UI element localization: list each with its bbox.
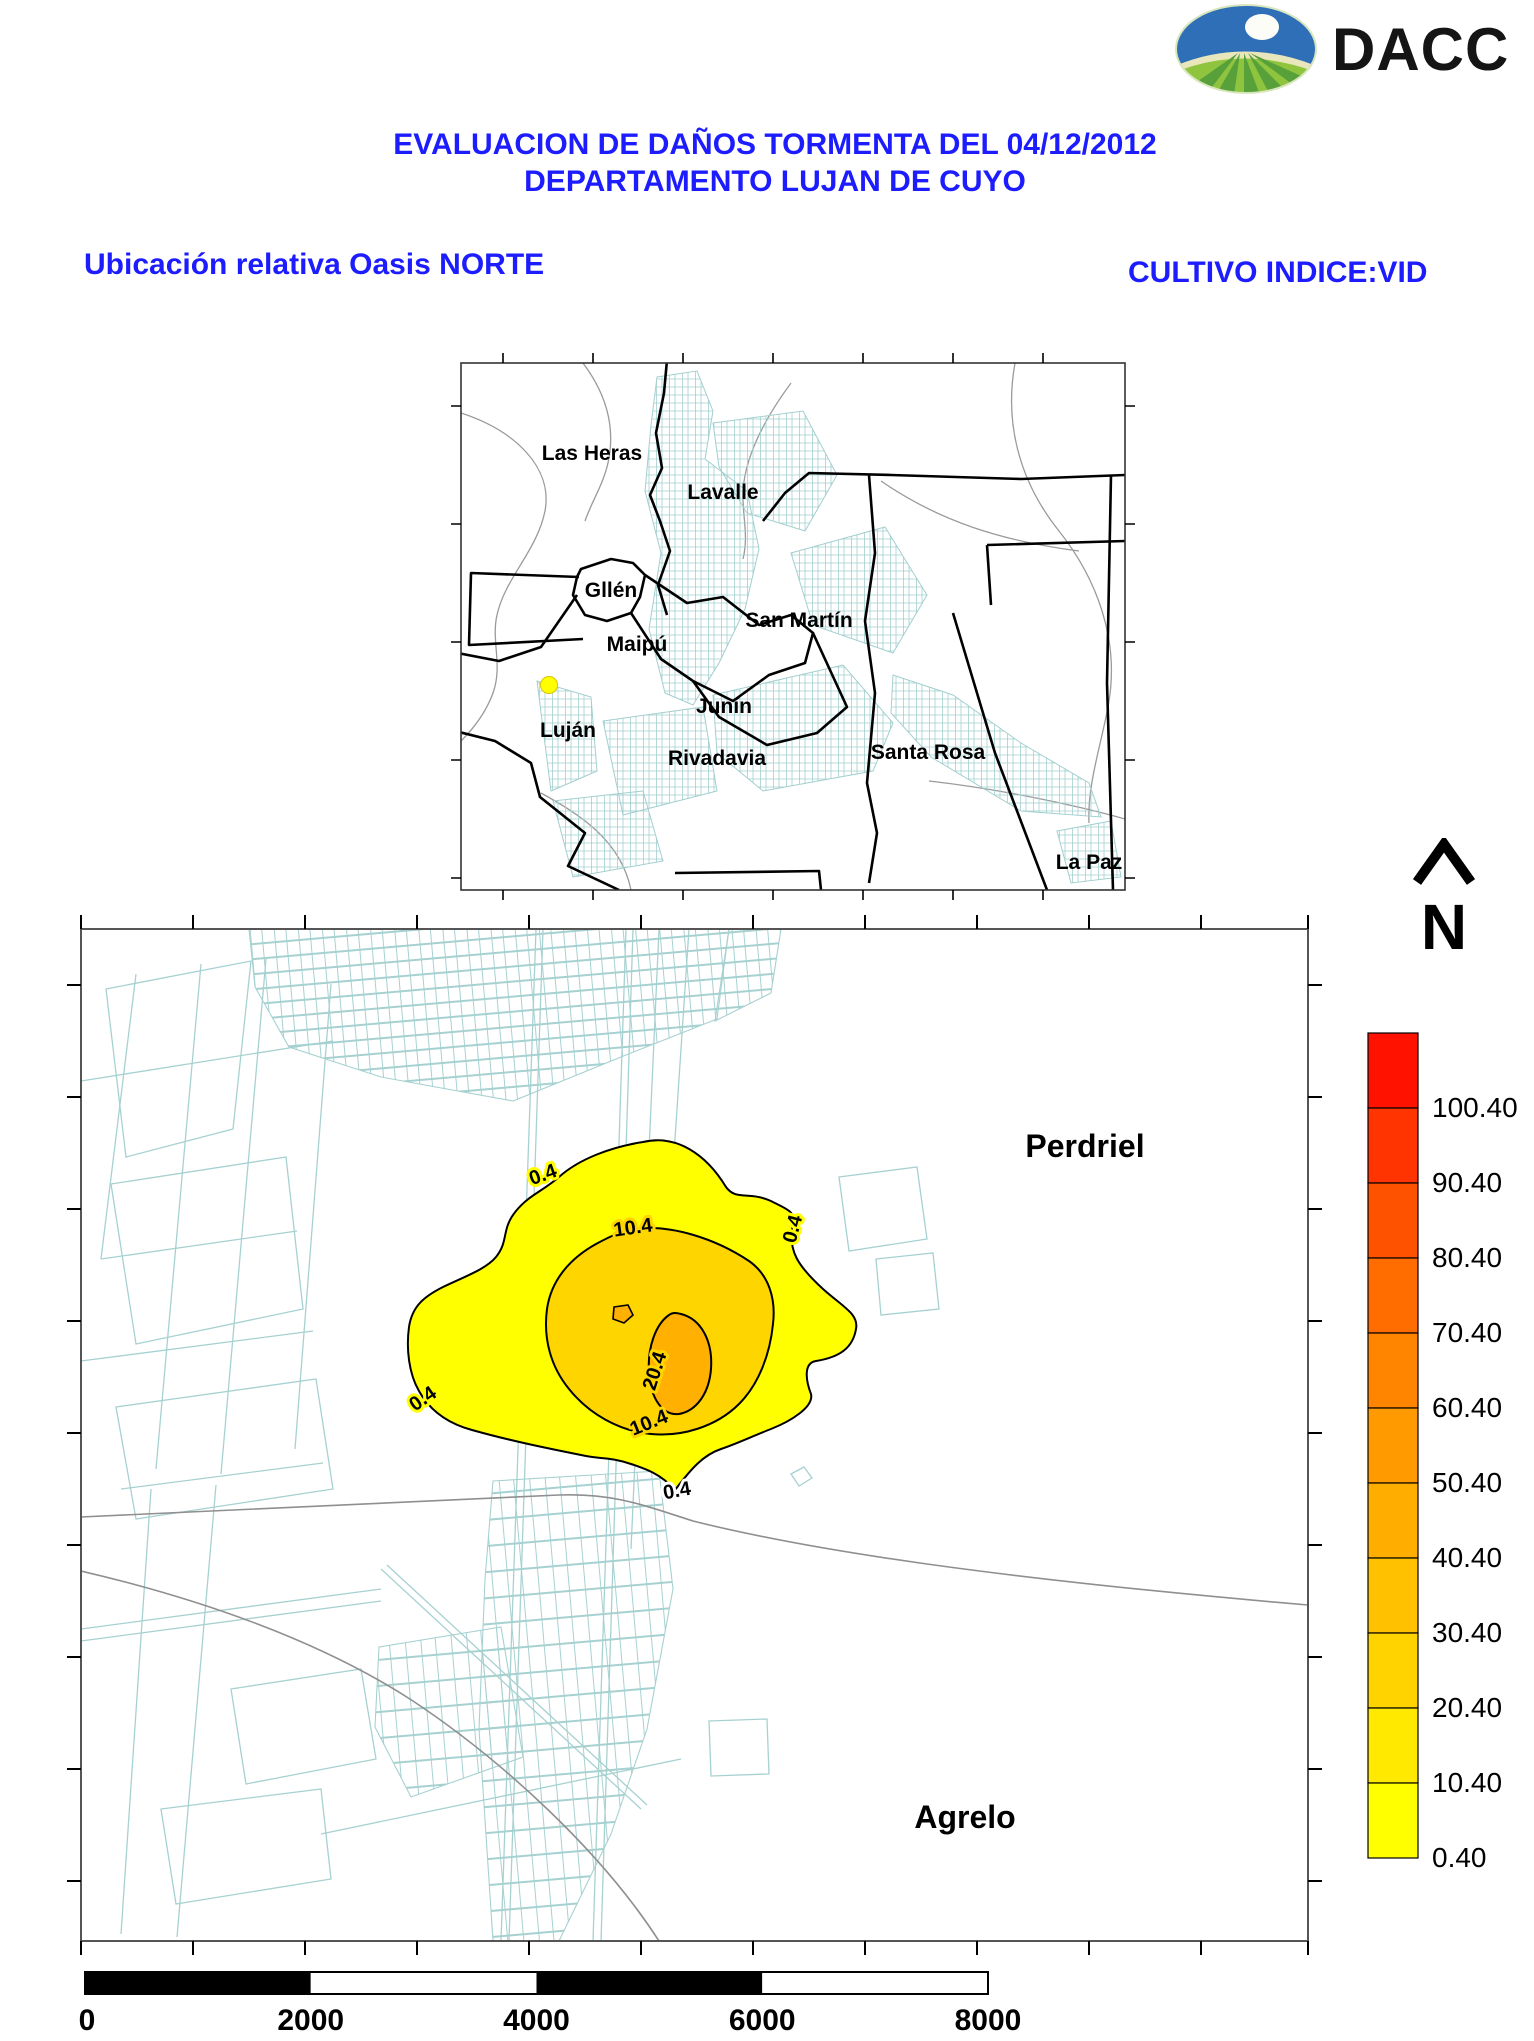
damage-color-legend: 100.40 90.40 80.40 70.40 60.40 50.40 40.…: [1352, 1025, 1534, 1877]
dacc-sun-field-icon: [1172, 3, 1324, 95]
north-arrow-icon: [1409, 838, 1479, 886]
title-line2: DEPARTAMENTO LUJAN DE CUYO: [300, 163, 1250, 200]
legend-cell-6: [1368, 1483, 1418, 1558]
storm-location-marker: [541, 677, 558, 694]
inset-location-map: Las Heras Lavalle Gllén Maipú San Martín…: [445, 347, 1141, 906]
legend-tick-80-40: 80.40: [1432, 1242, 1502, 1273]
subtitle-right: CULTIVO INDICE:VID: [1128, 256, 1427, 290]
label-maipu: Maipú: [607, 633, 668, 656]
legend-tick-10-40: 10.40: [1432, 1767, 1502, 1798]
scale-bar-labels: 0 2000 4000 6000 8000: [79, 2004, 1022, 2037]
label-rivadavia: Rivadavia: [668, 747, 766, 770]
scale-label-2000: 2000: [277, 2004, 344, 2037]
legend-cell-4: [1368, 1333, 1418, 1408]
scale-label-6000: 6000: [729, 2004, 796, 2037]
scale-label-0: 0: [79, 2004, 96, 2037]
legend-tick-labels: 100.40 90.40 80.40 70.40 60.40 50.40 40.…: [1432, 1092, 1518, 1873]
legend-tick-20-40: 20.40: [1432, 1692, 1502, 1723]
north-arrow-label: N: [1396, 897, 1492, 957]
scale-label-4000: 4000: [503, 2004, 570, 2037]
legend-tick-60-40: 60.40: [1432, 1392, 1502, 1423]
legend-cell-9: [1368, 1708, 1418, 1783]
label-las-heras: Las Heras: [542, 442, 642, 465]
legend-cell-5: [1368, 1408, 1418, 1483]
legend-tick-0-40: 0.40: [1432, 1842, 1487, 1873]
report-page: DACC EVALUACION DE DAÑOS TORMENTA DEL 04…: [0, 0, 1534, 2041]
label-la-paz: La Paz: [1056, 851, 1123, 874]
legend-tick-70-40: 70.40: [1432, 1317, 1502, 1348]
subtitle-left: Ubicación relativa Oasis NORTE: [84, 248, 544, 282]
scale-bar-segments: [85, 1972, 988, 1994]
legend-cell-7: [1368, 1558, 1418, 1633]
label-gllen: Gllén: [585, 579, 638, 602]
legend-color-cells: [1368, 1033, 1418, 1858]
label-santa-rosa: Santa Rosa: [871, 741, 986, 764]
page-title: EVALUACION DE DAÑOS TORMENTA DEL 04/12/2…: [300, 126, 1250, 200]
label-perdriel: Perdriel: [1025, 1128, 1144, 1164]
label-agrelo: Agrelo: [914, 1799, 1015, 1835]
map-scale-bar: 0 2000 4000 6000 8000: [69, 1958, 1029, 2041]
legend-cell-3: [1368, 1258, 1418, 1333]
legend-cell-8: [1368, 1633, 1418, 1708]
legend-tick-50-40: 50.40: [1432, 1467, 1502, 1498]
legend-tick-90-40: 90.40: [1432, 1167, 1502, 1198]
dacc-logo: DACC: [1172, 3, 1509, 95]
label-lujan: Luján: [540, 719, 596, 742]
legend-cell-10: [1368, 1783, 1418, 1858]
title-line1: EVALUACION DE DAÑOS TORMENTA DEL 04/12/2…: [300, 126, 1250, 163]
label-junin: Junín: [696, 695, 752, 718]
legend-cell-0: [1368, 1033, 1418, 1108]
main-damage-map: 0.4 10.4 0.4 20.4 0.4 10.4 0.4 Perdriel …: [65, 913, 1324, 1957]
scale-label-8000: 8000: [955, 2004, 1022, 2037]
legend-tick-40-40: 40.40: [1432, 1542, 1502, 1573]
label-lavalle: Lavalle: [687, 481, 758, 504]
legend-tick-30-40: 30.40: [1432, 1617, 1502, 1648]
north-arrow: N: [1396, 838, 1492, 957]
legend-cell-2: [1368, 1183, 1418, 1258]
legend-cell-1: [1368, 1108, 1418, 1183]
label-san-martin: San Martín: [745, 609, 852, 632]
logo-wordmark: DACC: [1332, 15, 1509, 84]
legend-tick-100-40: 100.40: [1432, 1092, 1518, 1123]
